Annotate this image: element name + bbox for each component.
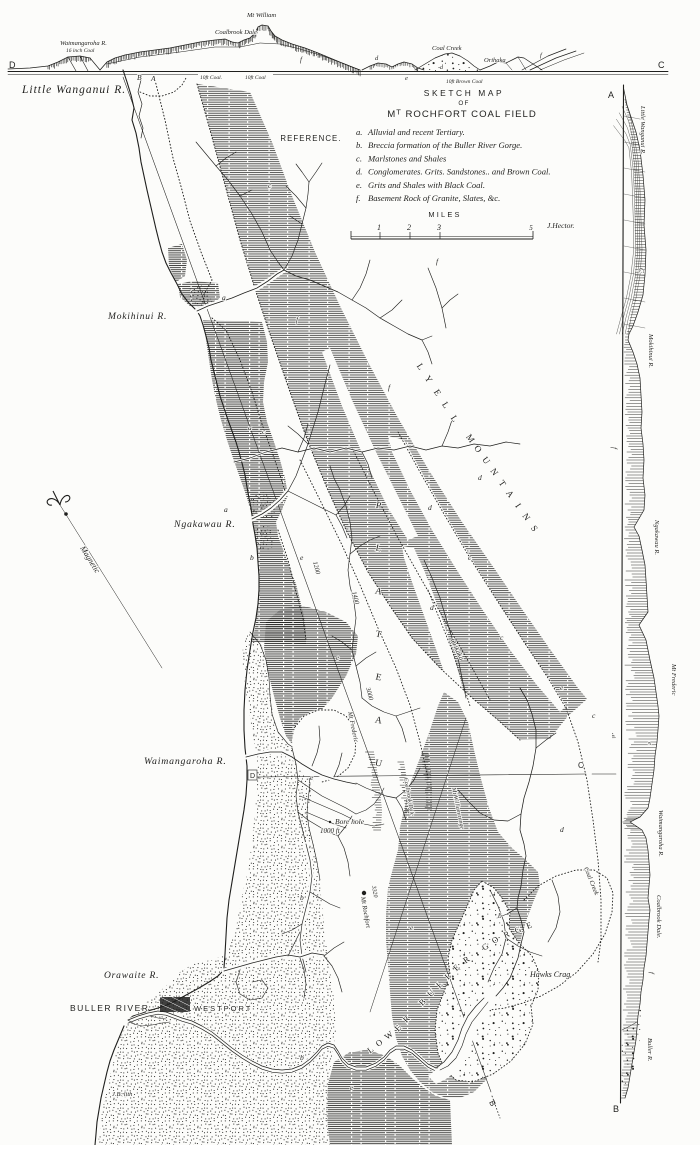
svg-text:a: a — [222, 293, 226, 302]
svg-text:Coalbrook Dale: Coalbrook Dale — [215, 29, 257, 36]
svg-text:b: b — [300, 893, 304, 902]
svg-text:10ft Brown Coal: 10ft Brown Coal — [446, 78, 483, 85]
svg-text:BULLER RIVER: BULLER RIVER — [70, 1003, 149, 1013]
svg-text:f.: f. — [356, 193, 361, 203]
svg-text:C: C — [658, 60, 665, 70]
svg-text:5: 5 — [529, 224, 533, 232]
svg-text:10ft Coal: 10ft Coal — [245, 74, 266, 81]
svg-text:Mokihinui R.: Mokihinui R. — [107, 312, 167, 322]
svg-text:a: a — [248, 423, 252, 432]
svg-text:D: D — [250, 773, 255, 780]
svg-text:e: e — [405, 75, 408, 82]
svg-text:A: A — [150, 74, 156, 83]
svg-text:d: d — [478, 473, 482, 482]
svg-text:WESTPORT: WESTPORT — [194, 1004, 252, 1013]
svg-text:C: C — [637, 268, 645, 273]
svg-text:MILES: MILES — [428, 210, 461, 219]
svg-text:OF: OF — [458, 100, 469, 107]
svg-text:Grits and Shales with Black Co: Grits and Shales with Black Coal. — [368, 180, 485, 190]
svg-text:3: 3 — [436, 223, 441, 232]
svg-text:1000 ft: 1000 ft — [320, 827, 341, 835]
svg-text:d: d — [428, 503, 432, 512]
svg-text:Waimangaroha R.: Waimangaroha R. — [657, 810, 664, 857]
svg-text:Coal Creek: Coal Creek — [432, 45, 462, 52]
svg-text:e.: e. — [356, 180, 362, 190]
svg-text:Breccia formation of the Bulle: Breccia formation of the Buller River Go… — [368, 140, 522, 150]
svg-text:Orihaka: Orihaka — [484, 57, 506, 64]
svg-text:Marlstones and Shales: Marlstones and Shales — [367, 153, 447, 163]
svg-text:a: a — [224, 505, 228, 514]
svg-text:Waimangaroha R.: Waimangaroha R. — [144, 756, 227, 767]
svg-text:Coalbrook Dale.: Coalbrook Dale. — [655, 895, 662, 939]
svg-text:1: 1 — [377, 223, 381, 232]
svg-text:a.: a. — [356, 127, 362, 137]
svg-text:10ft Coal.: 10ft Coal. — [200, 74, 222, 81]
svg-text:Bore hole: Bore hole — [335, 817, 365, 826]
svg-text:A: A — [608, 90, 614, 100]
svg-text:Alluvial and recent Tertiary.: Alluvial and recent Tertiary. — [367, 127, 465, 137]
svg-text:Little Wanganui R.: Little Wanganui R. — [639, 105, 646, 155]
svg-text:16 inch Coal: 16 inch Coal — [66, 48, 95, 54]
svg-text:c.: c. — [356, 153, 362, 163]
svg-text:d: d — [560, 825, 564, 834]
svg-text:SKETCH MAP: SKETCH MAP — [424, 88, 504, 98]
svg-text:e: e — [646, 742, 653, 745]
svg-text:J.Hector.: J.Hector. — [547, 221, 575, 230]
svg-text:Hawks Crag: Hawks Crag — [529, 970, 570, 979]
svg-text:b: b — [498, 911, 502, 920]
svg-text:Mt Frederic: Mt Frederic — [670, 663, 677, 695]
svg-text:d.: d. — [356, 167, 362, 177]
svg-text:d: d — [430, 603, 434, 612]
svg-text:Basement Rock of Granite, Slat: Basement Rock of Granite, Slates, &c. — [368, 193, 500, 203]
svg-text:Little Wanganui R.: Little Wanganui R. — [21, 84, 126, 96]
svg-text:Orawaite R.: Orawaite R. — [104, 971, 159, 981]
svg-text:2: 2 — [407, 223, 411, 232]
svg-text:Ngakawau R.: Ngakawau R. — [653, 519, 660, 555]
svg-text:B: B — [137, 73, 142, 82]
svg-text:b.: b. — [356, 140, 362, 150]
svg-text:MT ROCHFORT COAL FIELD: MT ROCHFORT COAL FIELD — [387, 108, 537, 121]
svg-text:Mokihinui R.: Mokihinui R. — [647, 333, 654, 368]
svg-text:B: B — [613, 1104, 619, 1114]
svg-text:C: C — [578, 761, 584, 770]
svg-text:Ngakawau R.: Ngakawau R. — [173, 519, 236, 530]
svg-text:Waimangaroha R.: Waimangaroha R. — [60, 40, 107, 47]
svg-text:Buller R.: Buller R. — [646, 1038, 653, 1062]
svg-text:b: b — [250, 553, 254, 562]
svg-text:J.B. lith: J.B. lith — [112, 1091, 132, 1098]
svg-text:Mt William: Mt William — [246, 12, 276, 19]
svg-text:b: b — [300, 1053, 304, 1062]
svg-text:Conglomerates. Grits. Sandston: Conglomerates. Grits. Sandstones.. and B… — [368, 167, 551, 177]
svg-text:REFERENCE.: REFERENCE. — [280, 134, 341, 143]
